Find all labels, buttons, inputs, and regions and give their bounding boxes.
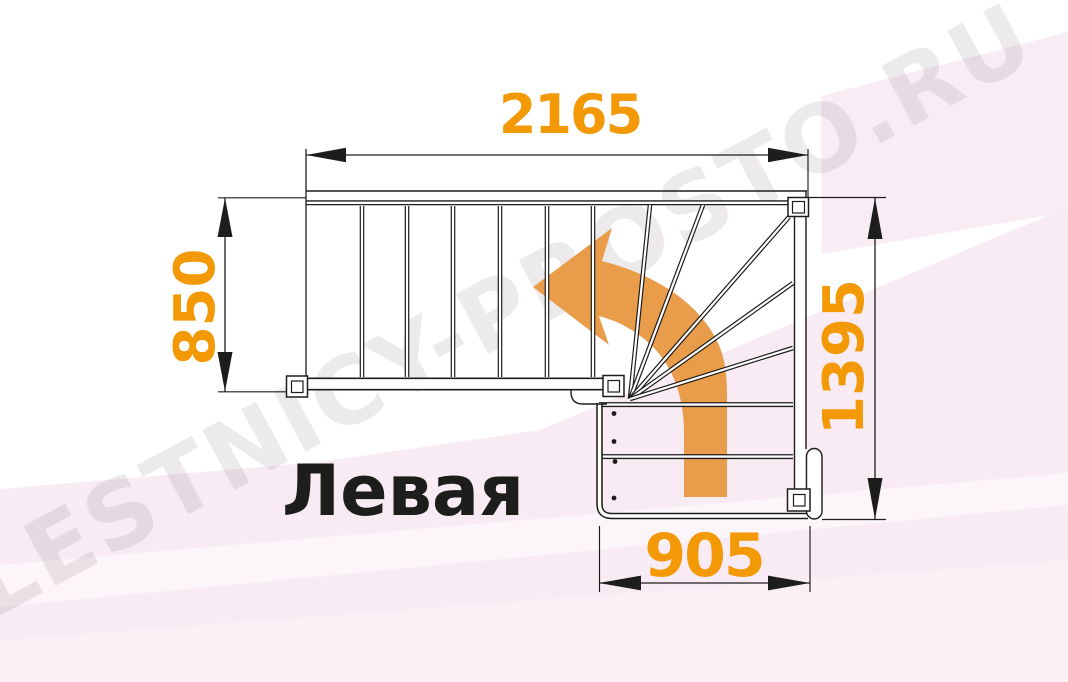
dimension-bottom-width: 905 bbox=[604, 526, 804, 586]
post-bottom-right bbox=[788, 489, 811, 511]
plan-title: Левая bbox=[282, 456, 524, 526]
post-left bbox=[287, 376, 308, 397]
dimension-left-height: 850 bbox=[168, 207, 224, 407]
dimension-top-width: 2165 bbox=[470, 88, 670, 142]
post-corner bbox=[603, 376, 624, 397]
dimension-right-height: 1395 bbox=[817, 257, 873, 457]
staircase-drawing: LESTNICY-PROSTO.RU bbox=[0, 0, 1068, 682]
post-top-right bbox=[788, 198, 809, 217]
